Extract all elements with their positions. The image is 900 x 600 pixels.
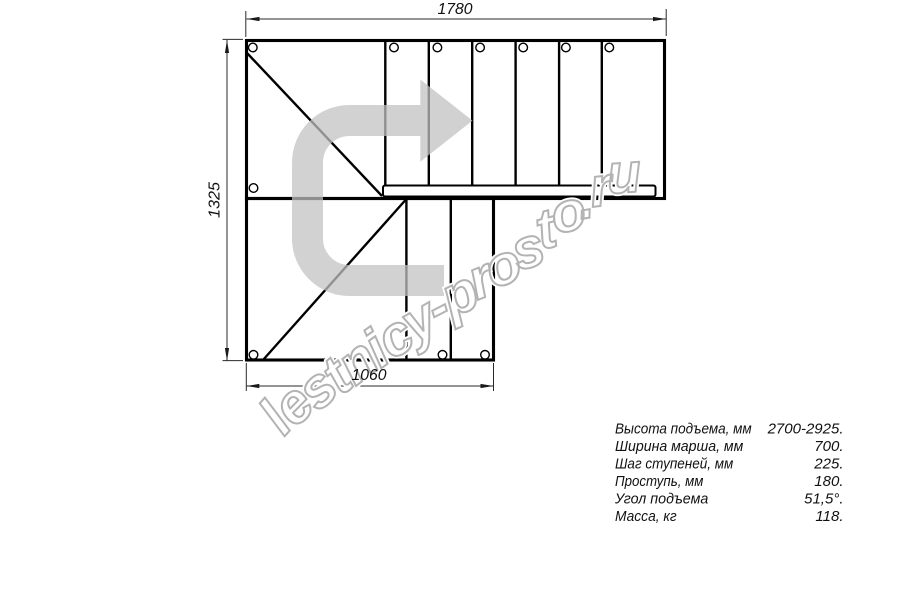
svg-text:Шаг ступеней, мм: Шаг ступеней, мм bbox=[615, 456, 733, 473]
svg-text:180.: 180. bbox=[814, 473, 843, 490]
svg-text:Масса, кг: Масса, кг bbox=[615, 508, 677, 525]
svg-text:1325: 1325 bbox=[207, 182, 224, 218]
svg-text:1780: 1780 bbox=[438, 1, 473, 18]
svg-text:Угол подъема: Угол подъема bbox=[614, 491, 708, 508]
svg-text:Высота подъема, мм: Высота подъема, мм bbox=[615, 421, 752, 438]
svg-text:118.: 118. bbox=[815, 508, 843, 525]
svg-text:225.: 225. bbox=[813, 456, 843, 473]
svg-text:Ширина марша, мм: Ширина марша, мм bbox=[615, 438, 743, 455]
svg-text:2700-2925.: 2700-2925. bbox=[767, 421, 844, 438]
svg-text:51,5°.: 51,5°. bbox=[804, 491, 843, 508]
svg-text:700.: 700. bbox=[814, 438, 843, 455]
svg-text:Проступь, мм: Проступь, мм bbox=[615, 473, 703, 490]
svg-text:1060: 1060 bbox=[352, 367, 387, 384]
